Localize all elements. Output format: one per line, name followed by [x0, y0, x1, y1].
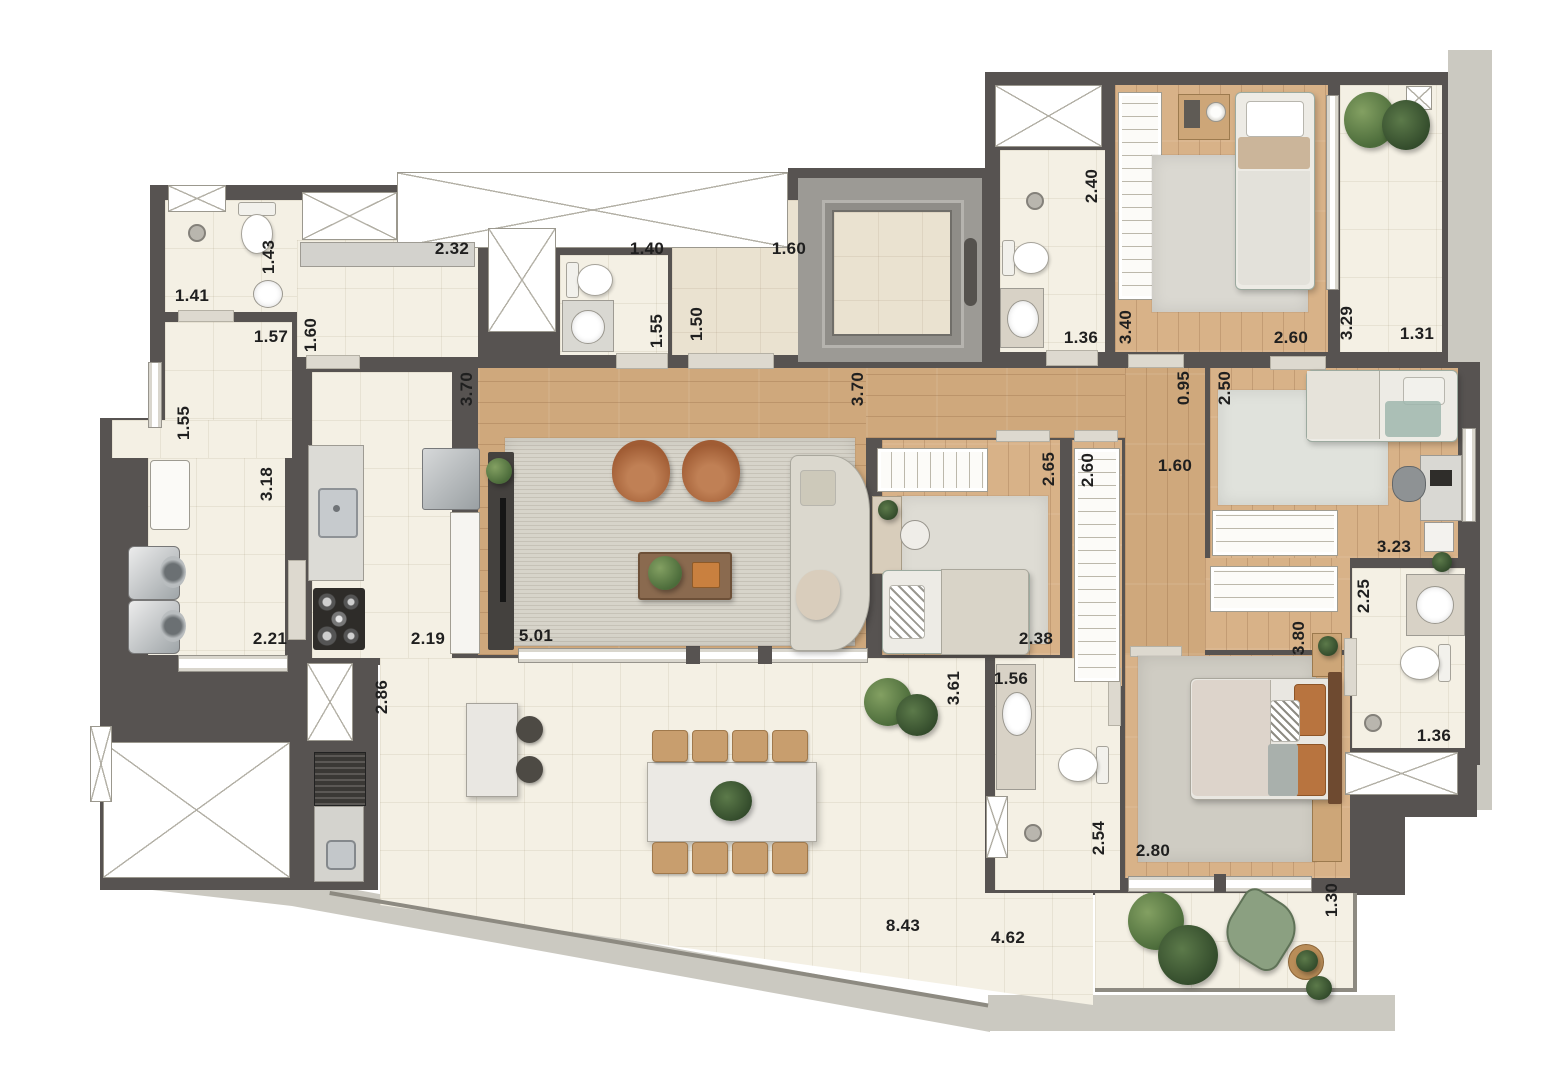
dimension-label: 3.70: [848, 372, 868, 406]
shaft-xbox-closet: [488, 228, 556, 332]
bed-pillow: [889, 585, 925, 639]
dimension-label: 4.62: [991, 928, 1025, 948]
dimension-label: 2.60: [1274, 328, 1308, 348]
bed-pillow: [1246, 101, 1304, 137]
dimension-label: 2.25: [1354, 579, 1374, 613]
laundry-tank: [150, 460, 190, 530]
dining-chair: [692, 730, 728, 762]
dimension-label: 2.40: [1082, 169, 1102, 203]
plant-icon: [878, 500, 898, 520]
toilet-icon: [1013, 242, 1049, 274]
dimension-label: 5.01: [519, 626, 553, 646]
topbath-door: [1046, 350, 1098, 366]
single-bed: [1235, 92, 1315, 290]
grill-sink: [326, 840, 356, 870]
dining-chair: [732, 730, 768, 762]
dining-chair: [652, 842, 688, 874]
desk-keyboard: [1430, 470, 1452, 486]
hall-155-floor: [112, 420, 292, 458]
master-door-mullion: [1214, 874, 1226, 892]
kitchen-faucet: [333, 505, 340, 512]
plant-icon: [648, 556, 682, 590]
dimension-label: 1.60: [301, 318, 321, 352]
dryer-door: [160, 610, 186, 642]
dimension-label: 1.31: [1400, 324, 1434, 344]
kitchen-tall-cabinet: [450, 512, 480, 654]
powder-room-door: [178, 310, 234, 322]
sofa-pillow: [800, 470, 836, 506]
desk-shelf: [1424, 522, 1454, 552]
bedroom2-window: [1462, 428, 1476, 522]
storage-door: [306, 355, 360, 369]
bedroom1-balcony-window: [1326, 95, 1339, 290]
shaft-xbox-top-strip-left: [302, 192, 397, 240]
bar-counter: [466, 703, 518, 797]
elevator-door: [964, 238, 977, 306]
floor-plan: 1.411.431.571.602.321.401.551.501.601.36…: [0, 0, 1566, 1080]
plant-icon: [1306, 976, 1332, 1000]
plant-icon: [486, 458, 512, 484]
service-window: [178, 655, 288, 672]
bed-throw: [1238, 137, 1310, 169]
dimension-label: 1.57: [254, 327, 288, 347]
bedroom1-door: [1128, 354, 1184, 368]
dimension-label: 1.55: [174, 406, 194, 440]
toilet-icon: [1400, 646, 1440, 680]
dimension-label: 3.40: [1116, 310, 1136, 344]
dimension-label: 1.36: [1064, 328, 1098, 348]
plant-icon: [1382, 100, 1430, 150]
dimension-label: 1.43: [259, 240, 279, 274]
sink-icon: [571, 310, 605, 344]
elevator: [798, 178, 982, 362]
bed-throw: [1268, 744, 1298, 796]
armchair: [612, 440, 670, 502]
dimension-label: 1.36: [1417, 726, 1451, 746]
lamp-icon: [1206, 102, 1226, 122]
shaft-xbox-top-small: [168, 185, 226, 212]
dimension-label: 3.18: [257, 467, 277, 501]
single-bed: [882, 570, 1030, 654]
bar-stool: [516, 716, 543, 743]
dimension-label: 1.56: [994, 669, 1028, 689]
plant-icon: [1432, 552, 1452, 572]
coffee-table-tray: [692, 562, 720, 588]
decor-books: [1184, 100, 1200, 128]
dimension-label: 2.50: [1215, 371, 1235, 405]
nightstand: [1312, 798, 1342, 862]
dimension-label: 2.65: [1039, 452, 1059, 486]
dimension-label: 2.32: [435, 239, 469, 259]
dimension-label: 1.60: [772, 239, 806, 259]
washer-door: [160, 556, 186, 588]
shower-icon: [1026, 192, 1044, 210]
wardrobe: [877, 448, 988, 492]
single-bed: [1306, 370, 1458, 442]
bed-blanket: [941, 569, 1029, 655]
dimension-label: 2.38: [1019, 629, 1053, 649]
sink-icon: [1002, 692, 1032, 736]
shaft-xbox-grill: [307, 663, 353, 741]
rightbath-door: [1344, 638, 1357, 696]
dining-chair: [772, 730, 808, 762]
armchair: [682, 440, 740, 502]
dimension-label: 3.70: [457, 372, 477, 406]
entry-door: [688, 353, 774, 369]
dimension-label: 1.55: [647, 314, 667, 348]
desk: [1420, 455, 1462, 521]
dimension-label: 0.95: [1174, 371, 1194, 405]
shaft-xbox-masterbath: [986, 796, 1008, 858]
shaft-xbox-topbath: [995, 85, 1102, 147]
dimension-label: 2.60: [1078, 453, 1098, 487]
bath140-door: [616, 353, 668, 369]
bar-stool: [516, 756, 543, 783]
balcony-rail-right: [1353, 893, 1357, 992]
bed-headboard: [1328, 672, 1342, 804]
desk-chair: [900, 520, 930, 550]
bedroom2-door: [1270, 356, 1326, 370]
fridge-icon: [422, 448, 480, 510]
terrace-apron-bottom: [988, 995, 1395, 1031]
plant-icon: [1158, 925, 1218, 985]
desk-chair: [1392, 466, 1426, 502]
dimension-label: 1.40: [630, 239, 664, 259]
kitchen-sink: [318, 488, 358, 538]
shaft-xbox-service: [103, 742, 290, 878]
tv-icon: [500, 498, 506, 602]
stove-cooktop-icon: [313, 588, 365, 650]
dimension-label: 2.80: [1136, 841, 1170, 861]
plant-icon: [1318, 636, 1338, 656]
wardrobe: [1212, 510, 1338, 556]
dining-chair: [652, 730, 688, 762]
dining-chair: [732, 842, 768, 874]
living-door-mullion: [686, 646, 700, 664]
sink-icon: [1416, 586, 1454, 624]
plant-icon: [1296, 950, 1318, 972]
plant-icon: [896, 694, 938, 736]
dimension-label: 1.60: [1158, 456, 1192, 476]
dining-chair: [772, 842, 808, 874]
elevator-cab: [832, 210, 952, 336]
shower-icon: [1364, 714, 1382, 732]
dimension-label: 3.80: [1289, 621, 1309, 655]
closet-door: [1074, 430, 1118, 442]
dimension-label: 3.29: [1337, 306, 1357, 340]
bedroom3-door: [996, 430, 1050, 442]
sink-icon: [253, 280, 283, 308]
dimension-label: 8.43: [886, 916, 920, 936]
shaft-xbox-rightcloset: [1345, 752, 1458, 795]
dimension-label: 3.61: [944, 671, 964, 705]
service-door: [288, 560, 306, 640]
sink-icon: [1007, 300, 1039, 338]
hallway-vertical-floor: [1125, 368, 1205, 655]
hall-window: [148, 362, 162, 428]
toilet-icon: [577, 264, 613, 296]
dimension-label: 2.19: [411, 629, 445, 649]
dimension-label: 2.86: [372, 680, 392, 714]
dimension-label: 1.30: [1322, 883, 1342, 917]
bed-blanket: [1238, 171, 1310, 285]
bed-pillow: [1270, 700, 1300, 742]
dimension-label: 1.50: [687, 307, 707, 341]
bed-pillow: [1294, 744, 1326, 796]
bed-throw: [1385, 401, 1441, 437]
shaft-xbox-top-strip: [397, 172, 788, 248]
shower-icon: [1024, 824, 1042, 842]
shower-icon: [188, 224, 206, 242]
dimension-label: 1.41: [175, 286, 209, 306]
shaft-xbox-leftwall: [90, 726, 112, 802]
bed-blanket: [1307, 371, 1380, 439]
dimension-label: 2.21: [253, 629, 287, 649]
toilet-icon: [1058, 748, 1098, 782]
grill-icon: [314, 752, 366, 806]
dimension-label: 2.54: [1089, 821, 1109, 855]
table-centerpiece-plant: [710, 781, 752, 821]
dining-chair: [692, 842, 728, 874]
master-closet-wardrobe: [1210, 566, 1338, 612]
dimension-label: 3.23: [1377, 537, 1411, 557]
living-door-mullion-2: [758, 646, 772, 664]
bed-duvet: [1192, 680, 1271, 796]
